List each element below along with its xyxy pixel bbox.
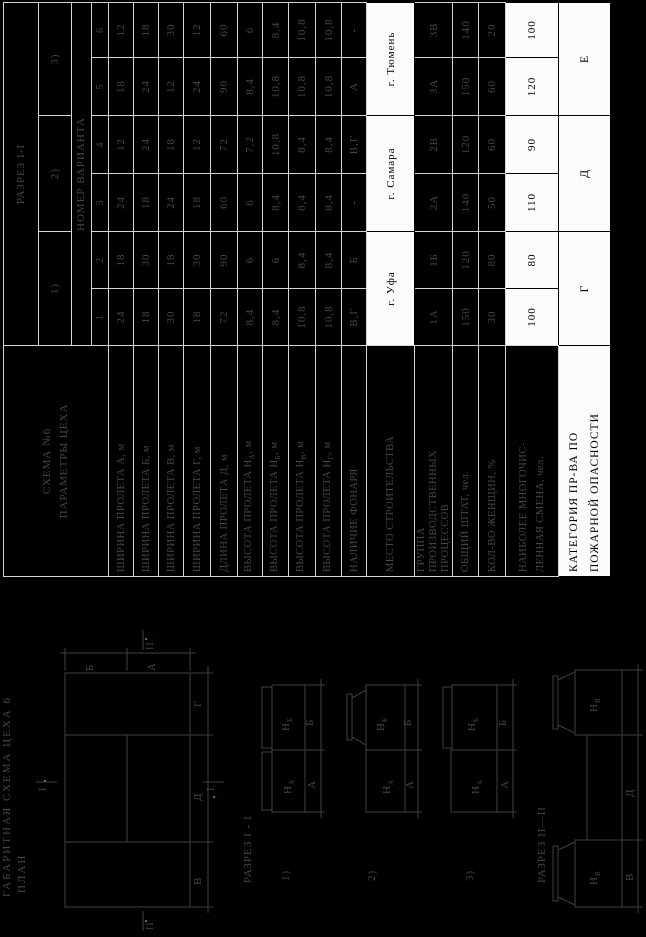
row-label: ВЫСОТА ПРОЛЕТА НБ, м (263, 346, 289, 577)
plan-label: ПЛАН (16, 854, 28, 893)
cell: 120 (453, 116, 479, 174)
plan-dim-g: Г (192, 700, 204, 707)
cell: - (342, 174, 367, 232)
view2-number: 2) (366, 870, 378, 881)
scheme-subtitle: ПАРАМЕТРЫ ЦЕХА (56, 346, 73, 576)
cell: 18 (159, 232, 184, 289)
cell: 18 (134, 289, 159, 346)
view1-dim-a: А (306, 780, 318, 789)
table-row-group: ГРУППА ПРОИЗВОДСТВЕННЫХ ПРОЦЕССОВ 1А 1Б … (415, 3, 453, 577)
plan-dim-a: А (146, 662, 158, 671)
cell: 12 (184, 3, 211, 58)
plan-dim-d: Д (192, 792, 204, 801)
view3-dim-a: А (499, 780, 511, 789)
cell: 18 (134, 3, 159, 58)
scheme-header-cell: СХЕМА №6 ПАРАМЕТРЫ ЦЕХА (4, 346, 109, 577)
place-cell: г. Тюмень (367, 3, 415, 116)
cell: 7,2 (238, 116, 263, 174)
section-mark-i-top: I (38, 787, 49, 791)
section2-title: РАЗРЕЗ II—II (536, 806, 548, 883)
cell: 120 (453, 232, 479, 289)
table-row: КОЛ-ВО ЖЕНЩИН, % 30 80 50 60 60 20 (479, 3, 506, 577)
table-row: ШИРИНА ПРОЛЕТА Б, м 18 30 18 24 24 18 (134, 3, 159, 577)
cell: 8,4 (263, 3, 289, 58)
section-mark-ii-left: II (145, 921, 156, 930)
cell: 60 (211, 3, 238, 58)
row-label-category: КАТЕГОРИЯ ПР-ВА ПО ПОЖАРНОЙ ОПАСНОСТИ (559, 346, 611, 577)
cell: 6 (238, 232, 263, 289)
table-row: ШИРИНА ПРОЛЕТА В, м 30 18 24 18 12 30 (159, 3, 184, 577)
cell: Б (342, 232, 367, 289)
cell: 24 (109, 289, 134, 346)
cell: 30 (479, 289, 506, 346)
group-header-2: 2) (39, 116, 72, 232)
shift-cell: 90 (506, 116, 559, 174)
cell: 8,4 (289, 116, 316, 174)
row-label: ВЫСОТА ПРОЛЕТА НГ, м (316, 346, 342, 577)
table-row: ВЫСОТА ПРОЛЕТА НА, м 8,4 6 6 7,2 8,4 6 (238, 3, 263, 577)
view3-dim-b: Б (497, 719, 509, 726)
row-label: ДЛИНА ПРОЛЕТА Д, м (211, 346, 238, 577)
section2-height-v: НВ (588, 870, 602, 885)
section-view-2 (347, 679, 422, 818)
variant-number: 4 (92, 116, 109, 174)
cell: - (342, 3, 367, 58)
shift-cell: 110 (506, 174, 559, 232)
row-label: ГРУППА ПРОИЗВОДСТВЕННЫХ ПРОЦЕССОВ (415, 346, 453, 577)
view1-height-b: НБ (280, 717, 294, 731)
cell: 24 (159, 174, 184, 232)
group-header-1: 1) (39, 232, 72, 346)
cell: 60 (211, 174, 238, 232)
view3-height-b: НБ (466, 717, 480, 731)
cell: 8,4 (316, 116, 342, 174)
cell: 8,4 (263, 174, 289, 232)
cell: 12 (184, 116, 211, 174)
row-label: ШИРИНА ПРОЛЕТА В, м (159, 346, 184, 577)
cell: 3А (415, 58, 453, 116)
cell: 8,4 (316, 232, 342, 289)
section2-dim-d: Д (624, 788, 636, 797)
category-cell: Г (559, 232, 611, 346)
view3-height-a: НА (470, 779, 484, 794)
cell: 10,8 (289, 58, 316, 116)
shift-cell: 100 (506, 3, 559, 58)
section2-height-g: НВ (588, 697, 602, 712)
technical-drawing (0, 577, 646, 937)
cell: 10,8 (289, 3, 316, 58)
view2-dim-a: А (404, 780, 416, 789)
variant-number: 2 (92, 232, 109, 289)
cell: А (342, 58, 367, 116)
category-cell: Е (559, 3, 611, 116)
table-row-shift: НАИБОЛЕЕ МНОГОЧИС- ЛЕННАЯ СМЕНА, чел. 10… (506, 3, 559, 577)
table-row: ВЫСОТА ПРОЛЕТА НГ, м 10,8 8,4 8,4 8,4 10… (316, 3, 342, 577)
cell: 1Б (415, 232, 453, 289)
place-cell: г. Самара (367, 116, 415, 232)
variant-number: 5 (92, 58, 109, 116)
drawing-area: ГАБАРИТНАЯ СХЕМА ЦЕХА 6 ПЛАН Б А В Д Г I… (0, 577, 646, 937)
section-mark-ii-right: II (145, 641, 156, 650)
cell: 18 (184, 174, 211, 232)
cell: 10,8 (316, 289, 342, 346)
cell: 6 (263, 232, 289, 289)
cell: 12 (109, 116, 134, 174)
cell: В,Г (342, 289, 367, 346)
section-view-3 (443, 679, 517, 818)
place-cell: г. Уфа (367, 232, 415, 346)
section-header-cell: РАЗРЕЗ I-I (4, 3, 39, 346)
cell: 90 (211, 232, 238, 289)
table-row: ВЫСОТА ПРОЛЕТА НБ, м 8,4 6 8,4 10,8 10,8… (263, 3, 289, 577)
variant-header-cell: НОМЕР ВАРИАНТА (72, 3, 92, 346)
table-row-category: КАТЕГОРИЯ ПР-ВА ПО ПОЖАРНОЙ ОПАСНОСТИ Г … (559, 3, 611, 577)
shift-cell: 120 (506, 58, 559, 116)
cell: 72 (211, 289, 238, 346)
row-label: МЕСТО СТРОИТЕЛЬСТВА (367, 346, 415, 577)
plan-dim-v: В (192, 877, 204, 885)
cell: 18 (109, 232, 134, 289)
cell: 2В (415, 116, 453, 174)
cell: 8,4 (289, 232, 316, 289)
cell: 10,8 (316, 58, 342, 116)
cell: 8,4 (289, 174, 316, 232)
table-row-place: МЕСТО СТРОИТЕЛЬСТВА г. Уфа г. Самара г. … (367, 3, 415, 577)
cell: 24 (184, 58, 211, 116)
shift-cell: 100 (506, 289, 559, 346)
cell: 20 (479, 3, 506, 58)
cell: 150 (453, 58, 479, 116)
parameters-table-wrap: СХЕМА №6 ПАРАМЕТРЫ ЦЕХА РАЗРЕЗ I-I 1) 2)… (3, 2, 611, 577)
row-label: ВЫСОТА ПРОЛЕТА НА, м (238, 346, 263, 577)
variant-number: 3 (92, 174, 109, 232)
view2-dim-b: Б (402, 719, 414, 726)
cell: 80 (479, 232, 506, 289)
cell: 10,8 (263, 116, 289, 174)
plan-dim-b: Б (84, 664, 96, 671)
section2-dim-v: В (624, 873, 636, 881)
cell: 72 (211, 116, 238, 174)
variant-number: 1 (92, 289, 109, 346)
row-label: КОЛ-ВО ЖЕНЩИН, % (479, 346, 506, 577)
variant-number: 6 (92, 3, 109, 58)
section-mark-i-bottom: I (206, 787, 217, 791)
view2-height-a: НА (381, 779, 395, 794)
cell: 2А (415, 174, 453, 232)
row-label: НАЛИЧИЕ ФОНАРЯ (342, 346, 367, 577)
cell: 8,4 (316, 174, 342, 232)
screenshot-root: { "table": { "header": { "scheme_line1":… (0, 0, 646, 937)
row-label: НАИБОЛЕЕ МНОГОЧИС- ЛЕННАЯ СМЕНА, чел. (506, 346, 559, 577)
cell: 150 (453, 289, 479, 346)
cell: 30 (159, 3, 184, 58)
plan-drawing (36, 630, 224, 931)
section1-title: РАЗРЕЗ I - I (242, 815, 254, 883)
table-row: ДЛИНА ПРОЛЕТА Д, м 72 90 60 72 90 60 (211, 3, 238, 577)
view3-number: 3) (464, 870, 476, 881)
row-label: ОБЩИЙ ШТАТ, чел. (453, 346, 479, 577)
cell: 12 (109, 3, 134, 58)
cell: 24 (134, 58, 159, 116)
scheme-title: СХЕМА №6 (39, 346, 56, 576)
group-header-3: 3) (39, 3, 72, 116)
cell: 18 (184, 289, 211, 346)
cell: 60 (479, 116, 506, 174)
cell: 10,8 (289, 289, 316, 346)
cell: 10,8 (263, 58, 289, 116)
view1-dim-b: Б (304, 719, 316, 726)
shift-cell: 80 (506, 232, 559, 289)
section-view-1 (262, 679, 325, 818)
cell: 30 (184, 232, 211, 289)
cell: 30 (134, 232, 159, 289)
cell: 90 (211, 58, 238, 116)
row-label: ШИРИНА ПРОЛЕТА Г, м (184, 346, 211, 577)
cell: 10,8 (316, 3, 342, 58)
parameters-table: СХЕМА №6 ПАРАМЕТРЫ ЦЕХА РАЗРЕЗ I-I 1) 2)… (3, 2, 611, 577)
table-header-row-1: СХЕМА №6 ПАРАМЕТРЫ ЦЕХА РАЗРЕЗ I-I (4, 3, 39, 577)
cell: 50 (479, 174, 506, 232)
row-label: ВЫСОТА ПРОЛЕТА НВ, м (289, 346, 316, 577)
cell: 30 (159, 289, 184, 346)
cell: 18 (134, 174, 159, 232)
view1-number: 1) (280, 870, 292, 881)
cell: 140 (453, 3, 479, 58)
table-row: НАЛИЧИЕ ФОНАРЯ В,Г Б - В,Г А - (342, 3, 367, 577)
cell: 3В (415, 3, 453, 58)
cell: 24 (109, 174, 134, 232)
cell: 1А (415, 289, 453, 346)
cell: 18 (109, 58, 134, 116)
cell: В,Г (342, 116, 367, 174)
rotated-page: ГАБАРИТНАЯ СХЕМА ЦЕХА 6 ПЛАН Б А В Д Г I… (0, 0, 646, 937)
cell: 6 (238, 174, 263, 232)
view2-height-b: НБ (375, 717, 389, 731)
cell: 8,4 (263, 289, 289, 346)
table-row: ВЫСОТА ПРОЛЕТА НВ, м 10,8 8,4 8,4 8,4 10… (289, 3, 316, 577)
cell: 8,4 (238, 289, 263, 346)
category-cell: Д (559, 116, 611, 232)
view1-height-a: НА (282, 779, 296, 794)
table-row: ШИРИНА ПРОЛЕТА А, м 24 18 24 12 18 12 (109, 3, 134, 577)
drawing-title: ГАБАРИТНАЯ СХЕМА ЦЕХА 6 (1, 696, 13, 897)
artifact-dot (44, 780, 46, 782)
cell: 8,4 (238, 58, 263, 116)
artifact-dot (145, 638, 147, 640)
cell: 24 (134, 116, 159, 174)
artifact-dot (213, 796, 215, 798)
row-label: ШИРИНА ПРОЛЕТА А, м (109, 346, 134, 577)
table-row: ШИРИНА ПРОЛЕТА Г, м 18 30 18 12 24 12 (184, 3, 211, 577)
table-row: ОБЩИЙ ШТАТ, чел. 150 120 140 120 150 140 (453, 3, 479, 577)
row-label: ШИРИНА ПРОЛЕТА Б, м (134, 346, 159, 577)
cell: 6 (238, 3, 263, 58)
cell: 12 (159, 58, 184, 116)
artifact-dot (145, 920, 147, 922)
cell: 60 (479, 58, 506, 116)
cell: 18 (159, 116, 184, 174)
cell: 140 (453, 174, 479, 232)
